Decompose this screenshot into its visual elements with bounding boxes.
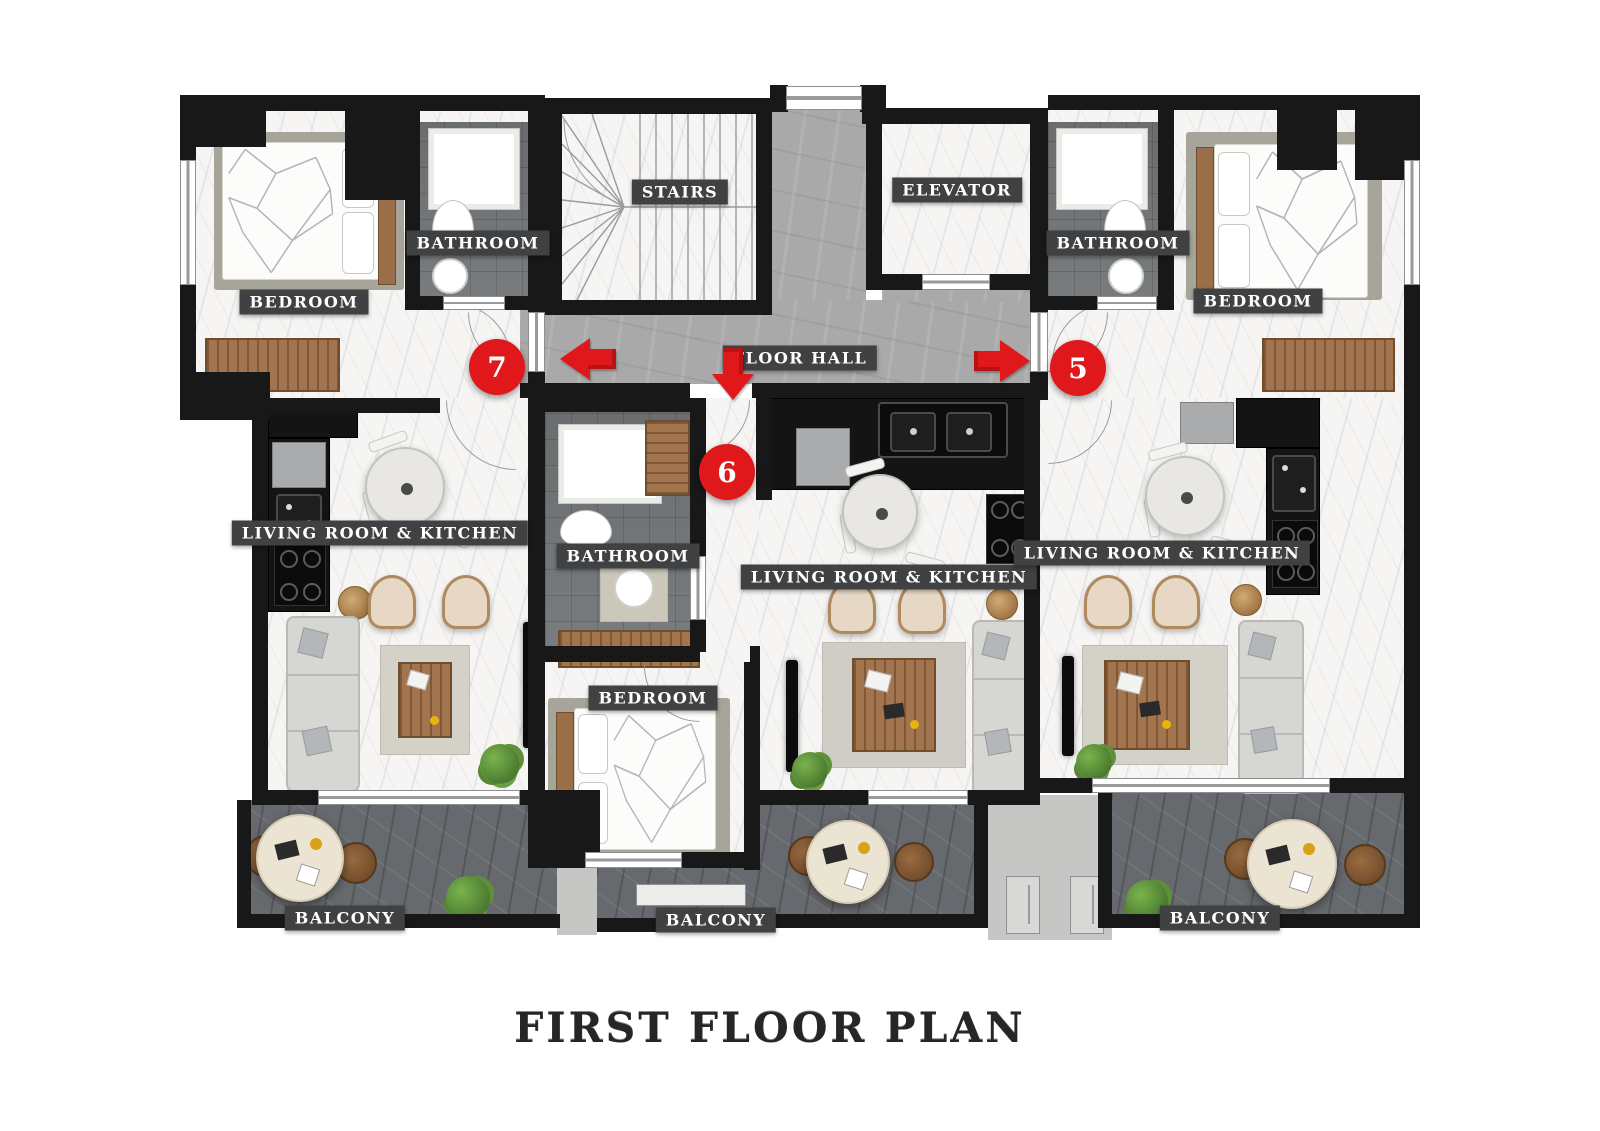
dresser-right-bedroom: [1262, 338, 1395, 392]
wall-segment: [1024, 398, 1040, 793]
wall-segment: [1030, 274, 1048, 312]
unit-number: 6: [717, 456, 736, 489]
parapet: [1098, 790, 1112, 928]
pillow: [1218, 152, 1250, 216]
wall-segment: [1404, 393, 1420, 793]
kitchen-counter-right: [1236, 398, 1320, 448]
tv-right: [1062, 656, 1074, 756]
wall-segment: [1404, 282, 1420, 393]
balcony-table-left: [256, 814, 344, 902]
wall-segment: [1030, 108, 1048, 290]
wall-segment: [682, 852, 744, 868]
tv-middle: [786, 660, 798, 772]
balcony-table-middle: [806, 820, 890, 904]
wall-segment: [545, 398, 690, 412]
fridge-left: [272, 442, 326, 488]
stove-left: [274, 544, 326, 606]
parapet: [1404, 793, 1420, 928]
room-label-stairs: STAIRS: [632, 180, 728, 205]
room-label-balcony-left: BALCONY: [285, 906, 405, 931]
wall-segment: [968, 790, 1040, 805]
room-label-bathroom-right: BATHROOM: [1047, 231, 1190, 256]
fridge-middle: [796, 428, 850, 486]
dining-table-left: [365, 447, 445, 527]
wall-segment: [405, 296, 443, 310]
parapet: [974, 805, 988, 928]
wall-segment: [756, 398, 772, 500]
wall-segment: [545, 98, 562, 315]
room-label-elevator: ELEVATOR: [892, 178, 1022, 203]
balcony-door-middle-bedroom: [585, 852, 682, 868]
toilet-middle: [560, 510, 612, 548]
unit-number: 7: [487, 351, 506, 384]
floor-plan-canvas: BEDROOM BATHROOM STAIRS ELEVATOR BATHROO…: [0, 0, 1600, 1131]
wall-segment: [252, 398, 268, 805]
dining-table-middle: [842, 474, 918, 550]
room-label-living-middle: LIVING ROOM & KITCHEN: [741, 565, 1037, 590]
unit-badge-5: 5: [1050, 340, 1106, 396]
pouf-middle: [986, 588, 1018, 620]
window: [1404, 160, 1420, 285]
wall-segment: [545, 300, 772, 315]
room-label-bedroom-left: BEDROOM: [240, 290, 369, 315]
wall-segment: [180, 95, 196, 165]
wall-segment: [545, 646, 700, 662]
pouf-right: [1230, 584, 1262, 616]
sink-right: [1108, 258, 1144, 294]
wall-segment: [1404, 95, 1420, 165]
unit-badge-6: 6: [699, 444, 755, 500]
room-label-bedroom-middle: BEDROOM: [589, 686, 718, 711]
kitchen-sink-middle: [878, 402, 1008, 458]
arrow-left-icon: [560, 338, 618, 380]
room-label-bathroom-left: BATHROOM: [407, 231, 550, 256]
door-gap-unit-7: [528, 312, 545, 372]
stairs-treads: [562, 114, 756, 302]
unit-number: 5: [1068, 352, 1087, 385]
wall-segment: [405, 110, 420, 310]
parapet: [744, 914, 988, 928]
wall-segment: [180, 282, 196, 398]
pillow: [578, 714, 608, 774]
pouf-left: [338, 586, 372, 620]
balcony-chair: [894, 842, 934, 882]
plan-title: FIRST FLOOR PLAN: [514, 1004, 1025, 1052]
bathroom-door-right: [1097, 296, 1157, 310]
armchair: [1152, 575, 1200, 629]
plant: [792, 752, 828, 788]
wall-segment: [862, 108, 1048, 124]
wall-segment: [750, 646, 760, 662]
wall-segment: [545, 98, 772, 114]
w all-segment: [1157, 296, 1174, 310]
plant: [1076, 744, 1112, 780]
vent-unit: [636, 884, 746, 906]
armchair: [368, 575, 416, 629]
wall-segment: [756, 98, 772, 315]
wall-segment: [1040, 778, 1092, 793]
wall-segment: [866, 274, 922, 290]
room-label-bathroom-middle: BATHROOM: [557, 544, 700, 569]
sofa-pillow: [1250, 726, 1278, 754]
balcony-table-right: [1247, 819, 1337, 909]
wall-segment: [1158, 110, 1174, 310]
balcony-slider-right: [1092, 778, 1330, 793]
kitchen-sink-right: [1272, 455, 1316, 512]
wall-segment: [752, 383, 1048, 398]
arrow-down-icon: [711, 348, 755, 400]
wall-segment: [744, 662, 760, 870]
armchair: [442, 575, 490, 629]
room-label-balcony-middle: BALCONY: [656, 908, 776, 933]
sink-left: [432, 258, 468, 294]
room-label-balcony-right: BALCONY: [1160, 906, 1280, 931]
arrow-right-icon: [972, 340, 1030, 382]
unit-badge-7: 7: [469, 339, 525, 395]
wall-segment: [268, 398, 440, 413]
blanket-pattern: [224, 144, 342, 278]
dining-table-right: [1145, 456, 1225, 536]
pillar-left: [557, 868, 597, 935]
wall-column: [186, 95, 266, 147]
wall-segment: [758, 790, 868, 805]
balcony-slider-left: [318, 790, 520, 805]
coffee-table-middle: [852, 658, 936, 752]
sink-middle: [614, 568, 654, 608]
wall-segment: [520, 383, 690, 398]
floor-hall-elevator-front: [882, 288, 1030, 302]
wall-column: [1277, 108, 1337, 170]
coffee-table-right: [1104, 660, 1190, 750]
coffee-table-left: [398, 662, 452, 738]
wall-segment: [252, 790, 318, 805]
balcony-slider-middle: [868, 790, 968, 805]
door-gap-unit-5: [1030, 312, 1048, 372]
elevator-door: [922, 274, 990, 290]
fridge-right: [1180, 402, 1234, 444]
pillow: [1218, 224, 1250, 288]
sofa-pillow: [984, 728, 1012, 756]
sofa-pillow: [302, 726, 333, 757]
shower-left: [428, 128, 520, 210]
window: [786, 86, 862, 110]
balcony-chair: [1344, 844, 1386, 886]
room-label-living-left: LIVING ROOM & KITCHEN: [232, 521, 528, 546]
wall-segment: [528, 95, 545, 312]
room-label-bedroom-right: BEDROOM: [1194, 289, 1323, 314]
headboard: [1196, 147, 1214, 295]
pillow: [342, 212, 374, 274]
armchair: [1084, 575, 1132, 629]
shower-right: [1056, 128, 1148, 210]
ac-unit: [1006, 876, 1040, 934]
parapet: [237, 800, 251, 928]
plant: [480, 744, 520, 784]
wall-segment: [866, 108, 882, 290]
window: [180, 160, 196, 285]
bathroom-door-left: [443, 296, 505, 310]
wall-segment: [520, 790, 545, 805]
wardrobe-middle-bath: [645, 420, 690, 496]
wall-segment: [1048, 296, 1097, 310]
room-label-living-right: LIVING ROOM & KITCHEN: [1014, 541, 1310, 566]
blanket-pattern: [610, 710, 714, 848]
